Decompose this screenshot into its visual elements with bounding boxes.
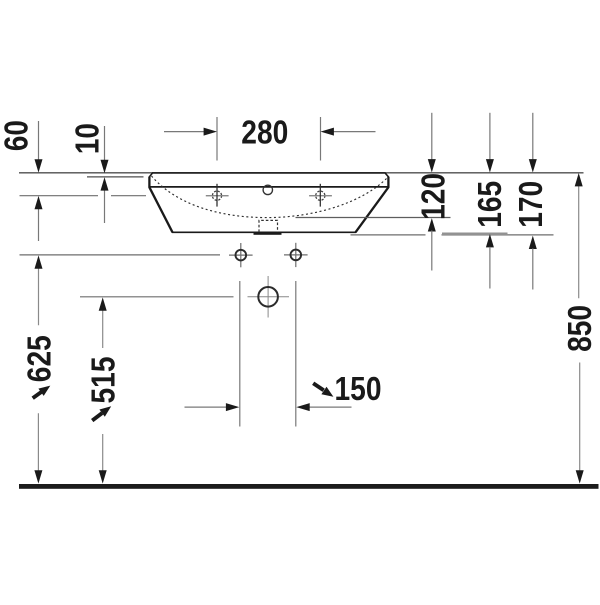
svg-text:280: 280 — [241, 115, 288, 152]
svg-text:165: 165 — [472, 181, 509, 228]
svg-text:625: 625 — [22, 335, 59, 382]
svg-text:850: 850 — [562, 305, 599, 352]
svg-text:150: 150 — [335, 371, 382, 408]
svg-text:170: 170 — [513, 181, 550, 228]
svg-text:120: 120 — [415, 173, 452, 220]
svg-text:10: 10 — [69, 123, 106, 154]
svg-text:60: 60 — [0, 120, 36, 151]
svg-text:515: 515 — [86, 357, 123, 404]
